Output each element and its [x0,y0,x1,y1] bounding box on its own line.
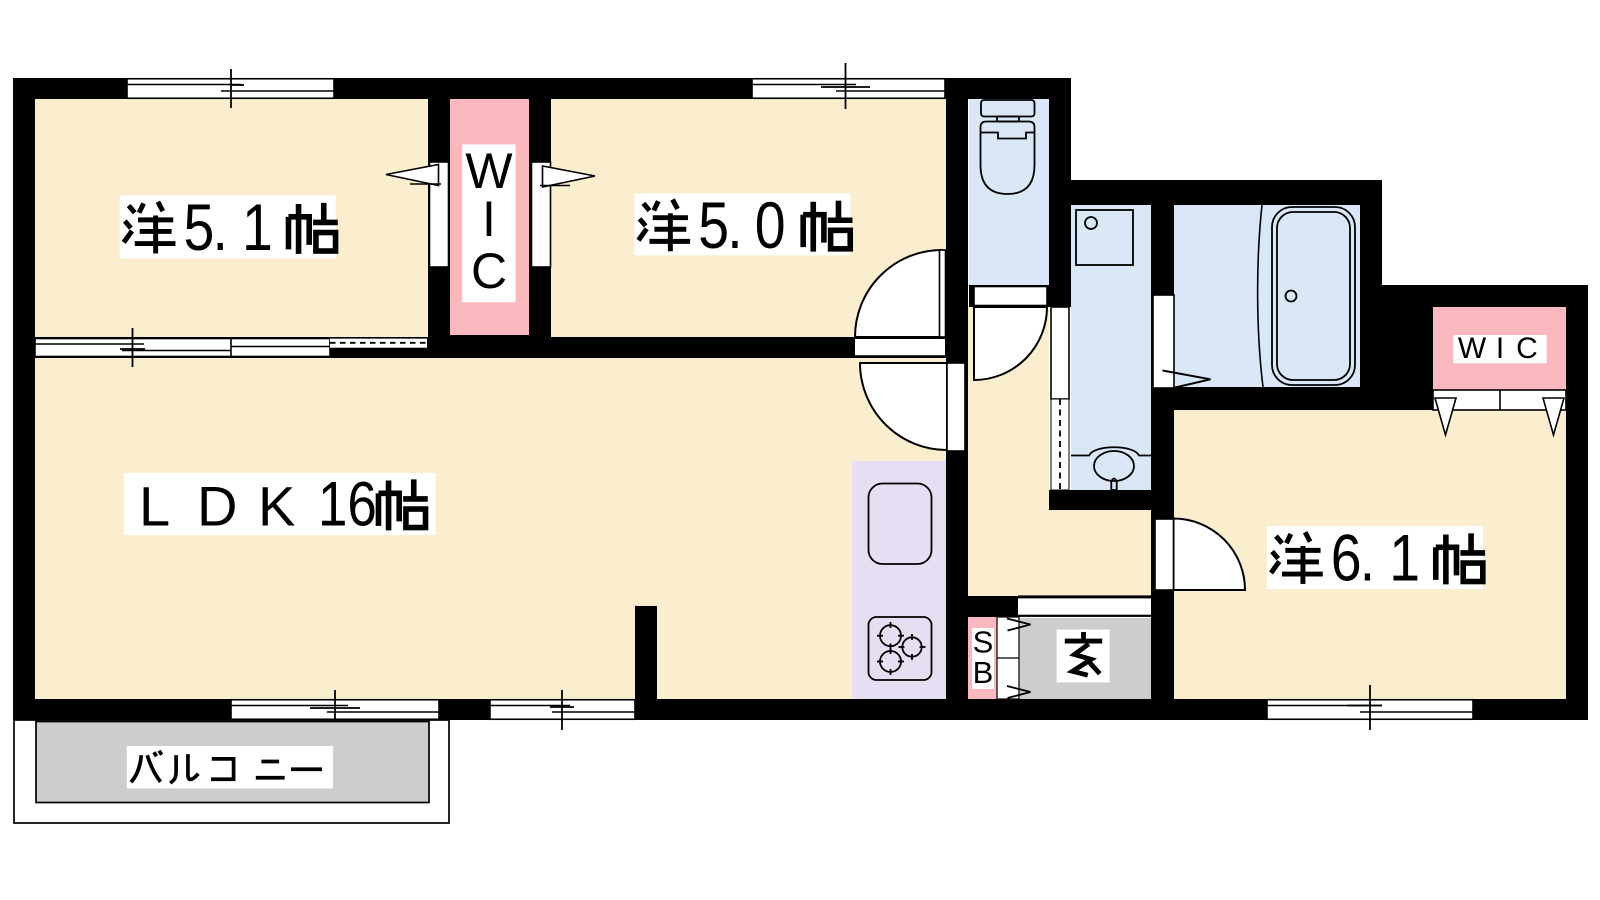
svg-text:I: I [1496,332,1504,365]
svg-text:D: D [197,475,237,538]
svg-text:5: 5 [184,190,215,264]
svg-text:6: 6 [1331,521,1362,595]
svg-text:1: 1 [242,190,273,264]
svg-text:B: B [973,655,994,690]
svg-text:.: . [213,190,228,264]
svg-text:1: 1 [1389,521,1420,595]
svg-text:C: C [1516,332,1538,365]
svg-text:L: L [139,475,170,538]
svg-text:.: . [727,188,742,262]
svg-text:.: . [1360,521,1375,595]
svg-text:0: 0 [755,188,786,262]
svg-text:C: C [471,243,507,299]
svg-text:5: 5 [698,188,729,262]
svg-text:16: 16 [318,469,377,539]
svg-text:K: K [258,475,295,538]
svg-text:I: I [482,191,496,247]
svg-text:W: W [1458,332,1487,365]
